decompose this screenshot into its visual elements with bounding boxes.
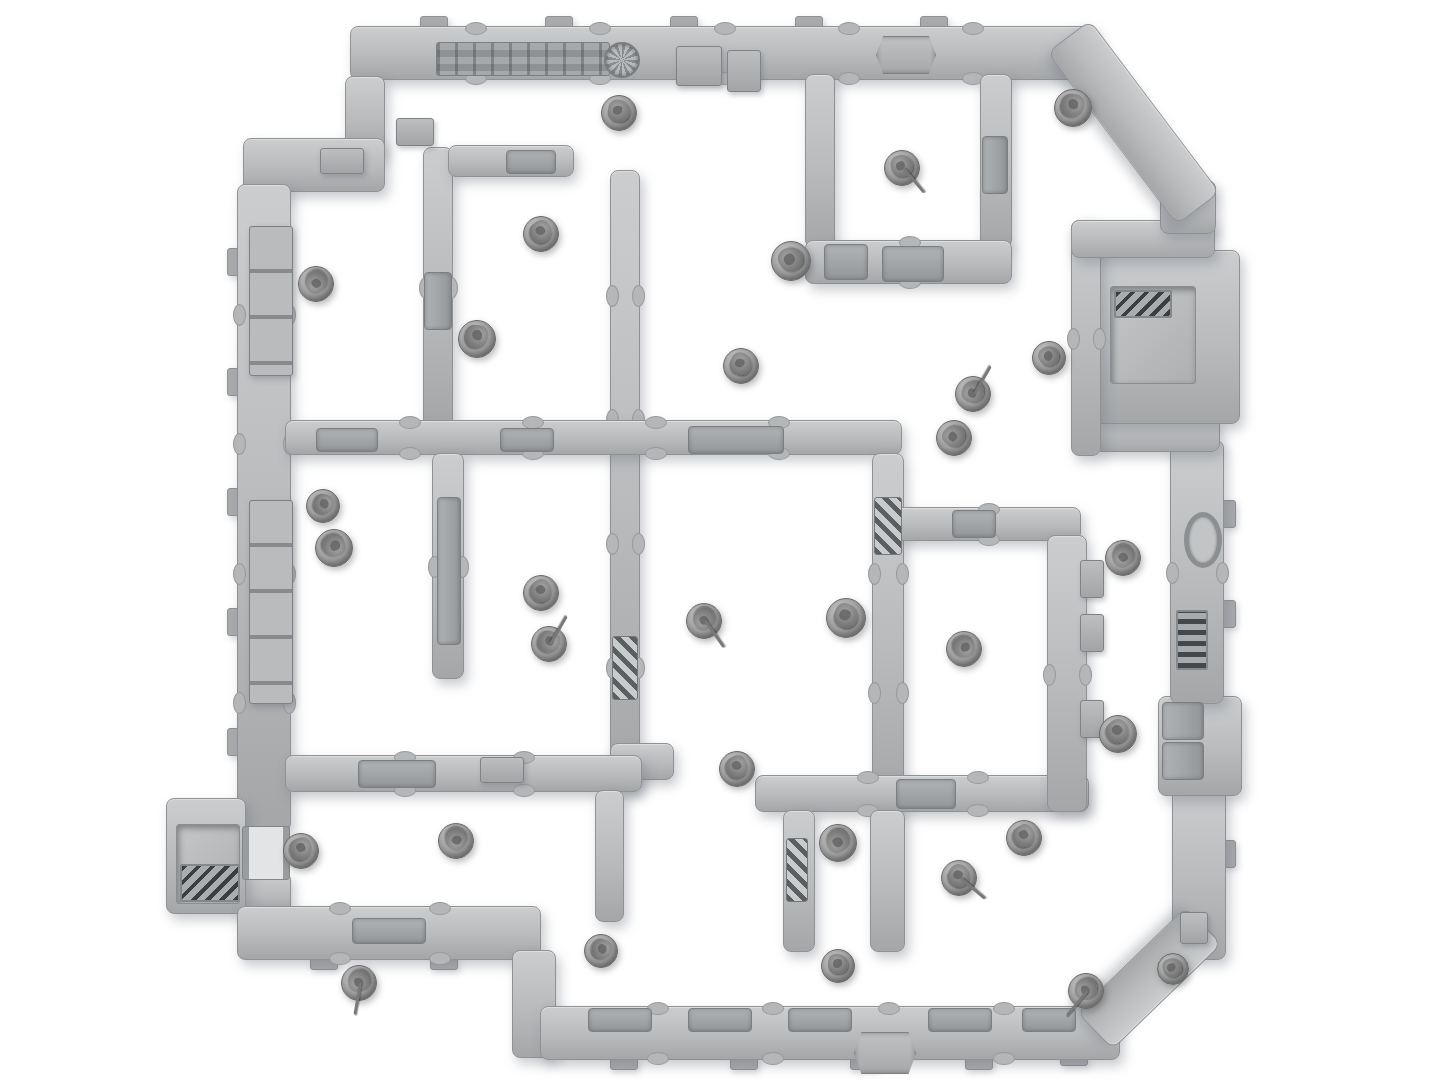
miniature-base (438, 823, 474, 859)
wall-box (1080, 560, 1104, 598)
fan-vent (604, 42, 640, 78)
miniature-figure (1009, 821, 1039, 851)
wall-module-bump (513, 784, 535, 797)
corner-box (396, 118, 434, 146)
door-panel (952, 510, 996, 538)
miniature-base (298, 266, 334, 302)
miniature-base (936, 420, 972, 456)
door-panel (437, 497, 461, 645)
miniature-figure (939, 421, 970, 452)
wall-module-bump (967, 804, 989, 817)
door-panel (506, 150, 556, 174)
miniature-base (531, 626, 567, 662)
hazard-ladder (786, 838, 808, 902)
miniature-base (819, 824, 857, 862)
wall-module-bump (1043, 664, 1056, 686)
miniature-base (1032, 341, 1066, 375)
wall-module-bump (606, 533, 619, 555)
miniature-figure (1102, 716, 1134, 748)
corner-box (320, 148, 364, 174)
miniature-figure (319, 531, 349, 561)
miniature-figure (465, 325, 490, 350)
door-lintel (928, 1008, 992, 1032)
crate-stack (249, 500, 293, 704)
wall-module-bump (1166, 562, 1179, 584)
miniature-base (884, 150, 920, 186)
wall-box (1180, 912, 1208, 944)
wall-module-bump (233, 692, 246, 714)
crate-stack (249, 226, 293, 376)
hatch-panel (896, 779, 956, 809)
miniature-base (341, 965, 377, 1001)
wall-module-bump (329, 952, 351, 965)
wall-module-bump (632, 533, 645, 555)
miniature-weapon (902, 167, 925, 193)
console-box (676, 46, 722, 86)
wall-module-bump (962, 22, 984, 35)
wall-connector-tab (1222, 500, 1236, 528)
wall-module-bump (465, 22, 487, 35)
miniature-weapon (704, 620, 725, 648)
door-panel (1162, 702, 1204, 740)
miniature-base (306, 489, 340, 523)
divider-bottom (595, 790, 624, 922)
miniature-figure (722, 752, 751, 781)
wall-module-bump (868, 563, 881, 585)
wall-module-bump (632, 285, 645, 307)
miniature-base (941, 860, 977, 896)
miniature-figure (830, 600, 862, 632)
miniature-base (723, 348, 759, 384)
wall-module-bump (329, 902, 351, 915)
miniature-base (458, 320, 496, 358)
wall-module-bump (714, 22, 736, 35)
wall-module-bump (896, 682, 909, 704)
wall-module-bump (645, 416, 667, 429)
hex-emblem (876, 36, 936, 74)
wall-module-bump (878, 1002, 900, 1015)
wall-module-bump (233, 304, 246, 326)
miniature-base (719, 751, 755, 787)
airlock-grate (180, 864, 240, 902)
miniature-base (283, 833, 319, 869)
wall-module-bump (429, 902, 451, 915)
wall-module-bump (399, 416, 421, 429)
alcove-grate (1114, 290, 1172, 318)
pipe-greeble-strip (436, 42, 610, 76)
hex-emblem (854, 1032, 916, 1074)
miniature-figure (952, 635, 977, 660)
miniature-figure (1161, 955, 1186, 980)
wall-module-bump (1067, 328, 1080, 350)
crossbar-h2 (285, 755, 642, 792)
miniature-base (315, 529, 353, 567)
miniature-base (601, 95, 637, 131)
wall-module-bump (399, 447, 421, 460)
miniature-base (523, 575, 559, 611)
door-lintel (688, 426, 784, 454)
miniature-figure (1060, 93, 1086, 119)
miniature-base (584, 934, 618, 968)
miniature-figure (310, 491, 336, 517)
wall-box (1080, 614, 1104, 652)
wall-module-bump (993, 1052, 1015, 1065)
room-a-wall-left (805, 74, 835, 248)
miniature-figure (1074, 977, 1098, 1001)
wall-module-bump (1216, 562, 1229, 584)
wall-module-bump (1093, 328, 1106, 350)
wall-module-bump (967, 771, 989, 784)
wall-module-bump (647, 1052, 669, 1065)
miniature-base (1006, 820, 1042, 856)
miniature-base (686, 603, 722, 639)
hazard-ladder (874, 497, 902, 555)
wall-module-bump (1079, 664, 1092, 686)
pocket-leg-right (870, 810, 905, 952)
miniature-figure (441, 824, 471, 854)
miniature-figure (606, 98, 631, 123)
console-box (480, 757, 524, 783)
miniature-base (1157, 953, 1189, 985)
miniature-base (771, 241, 811, 281)
miniature-figure (774, 242, 807, 275)
hatch-panel (352, 918, 426, 944)
wall-module-bump (589, 22, 611, 35)
hatch-panel (882, 246, 944, 282)
wall-module-bump (838, 72, 860, 85)
miniature-base (1054, 89, 1092, 127)
terrain-board-render (0, 0, 1445, 1084)
wall-module-bump (838, 22, 860, 35)
miniature-figure (1035, 342, 1064, 371)
miniature-base (1105, 540, 1141, 576)
miniature-figure (588, 936, 614, 962)
miniature-base (826, 598, 866, 638)
wall-module-bump (762, 1052, 784, 1065)
miniature-figure (301, 267, 331, 297)
miniature-base (955, 376, 991, 412)
miniature-base (821, 949, 855, 983)
hatch-panel (358, 760, 436, 788)
miniature-figure (526, 576, 557, 607)
door-lintel (588, 1008, 652, 1032)
door-panel (316, 428, 378, 452)
door-panel (424, 272, 452, 330)
wall-connector-tab (1222, 600, 1236, 628)
miniature-base (946, 631, 982, 667)
miniature-figure (1108, 541, 1138, 571)
wall-module-bump (857, 771, 879, 784)
wall-module-bump (868, 682, 881, 704)
miniature-figure (827, 953, 848, 974)
miniature-base (1099, 715, 1137, 753)
miniature-figure (727, 350, 756, 379)
wall-module-bump (896, 563, 909, 585)
wall-module-bump (993, 1002, 1015, 1015)
miniature-figure (822, 825, 854, 857)
console-box (727, 50, 761, 92)
miniature-base (523, 216, 559, 252)
wall-module-bump (606, 285, 619, 307)
door-panel (1162, 742, 1204, 780)
oval-port (1184, 512, 1222, 568)
miniature-base (1068, 973, 1104, 1009)
wall-grille (1176, 610, 1208, 670)
miniature-figure (689, 604, 718, 633)
door-panel (824, 244, 868, 280)
door-lintel (688, 1008, 752, 1032)
miniature-figure (526, 217, 556, 247)
door-panel (982, 136, 1008, 194)
miniature-weapon (960, 877, 986, 900)
hazard-ladder (612, 636, 638, 700)
door-lintel (788, 1008, 852, 1032)
wall-module-bump (233, 563, 246, 585)
miniature-figure (287, 835, 315, 863)
door-panel (500, 428, 554, 452)
wall-module-bump (762, 1002, 784, 1015)
wall-module-bump (233, 433, 246, 455)
wall-module-bump (645, 447, 667, 460)
